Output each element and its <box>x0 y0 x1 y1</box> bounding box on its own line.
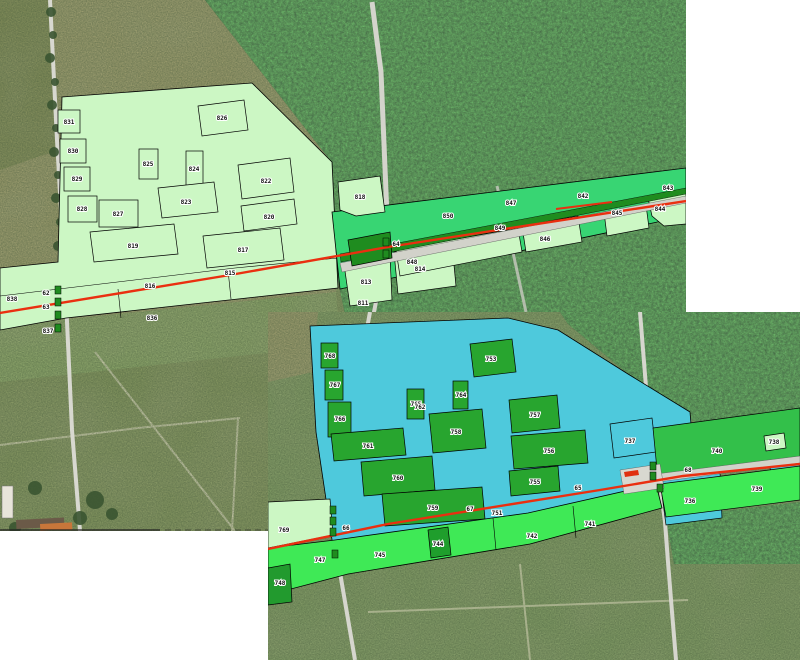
parcel-label: 67 <box>466 506 474 513</box>
parcel-label: 737 <box>625 438 636 445</box>
parcel-label: 828 <box>77 206 88 213</box>
parcel-label: 764 <box>456 392 467 399</box>
parcel-label: 847 <box>506 200 517 207</box>
parcel-label: 757 <box>530 412 541 419</box>
parcel-label: 63 <box>42 304 50 311</box>
parcel-label: 756 <box>544 448 555 455</box>
parcel-label: 64 <box>392 241 400 248</box>
parcel-label: 68 <box>684 467 692 474</box>
map-canvas[interactable]: 826 825 824 831 830 829 828 827 823 822 … <box>0 0 800 660</box>
parcel-label: 843 <box>663 185 674 192</box>
parcel-label: 825 <box>143 161 154 168</box>
parcel-label: 820 <box>264 214 275 221</box>
parcel-label: 815 <box>225 270 236 277</box>
parcel-label: 838 <box>7 296 18 303</box>
parcel-label: 748 <box>275 580 286 587</box>
parcel-label: 745 <box>375 552 386 559</box>
parcel-label: 817 <box>238 247 249 254</box>
parcel-label: 739 <box>752 486 763 493</box>
parcel-label: 760 <box>393 475 404 482</box>
parcel-label: 830 <box>68 148 79 155</box>
parcel-label: 751 <box>492 510 503 517</box>
parcel-label: 836 <box>147 315 158 322</box>
parcel-label: 811 <box>358 300 369 307</box>
parcel-label: 741 <box>585 521 596 528</box>
parcel-label: 831 <box>64 119 75 126</box>
parcel-label: 738 <box>769 439 780 446</box>
map-tile-bottom[interactable]: 753 768 767 766 765 764 758 757 756 761 … <box>268 312 800 660</box>
parcel-label: 844 <box>655 206 666 213</box>
parcel-label: 747 <box>315 557 326 564</box>
parcel-label: 822 <box>261 178 272 185</box>
parcel-label: 845 <box>612 210 623 217</box>
parcel-label: 762 <box>415 404 426 411</box>
parcel-label: 814 <box>415 266 426 273</box>
parcel-label: 740 <box>712 448 723 455</box>
parcel-label: 769 <box>279 527 290 534</box>
parcel-label: 766 <box>335 416 346 423</box>
parcel-label: 826 <box>217 115 228 122</box>
parcel-label: 816 <box>145 283 156 290</box>
parcel-label: 65 <box>574 485 582 492</box>
parcel-label: 818 <box>355 194 366 201</box>
parcel-label: 842 <box>578 193 589 200</box>
parcel-label: 823 <box>181 199 192 206</box>
parcel-label: 819 <box>128 243 139 250</box>
parcel-label: 62 <box>42 290 50 297</box>
parcel-label: 66 <box>342 525 350 532</box>
parcel-label: 742 <box>527 533 538 540</box>
parcel-label: 753 <box>486 356 497 363</box>
parcel-label: 761 <box>363 443 374 450</box>
parcel-label: 767 <box>330 382 341 389</box>
parcel-label: 827 <box>113 211 124 218</box>
parcel-label: 736 <box>685 498 696 505</box>
parcel-label: 837 <box>43 328 54 335</box>
parcel-label: 849 <box>495 225 506 232</box>
parcel-label: 846 <box>540 236 551 243</box>
parcel-label: 758 <box>451 429 462 436</box>
parcel-label: 813 <box>361 279 372 286</box>
parcel-label: 850 <box>443 213 454 220</box>
parcel-label: 755 <box>530 479 541 486</box>
parcel-label: 759 <box>428 505 439 512</box>
parcel-label: 768 <box>325 353 336 360</box>
parcel-label: 824 <box>189 166 200 173</box>
parcel-label: 829 <box>72 176 83 183</box>
parcel-label: 848 <box>407 259 418 266</box>
parcel-label: 744 <box>433 541 444 548</box>
